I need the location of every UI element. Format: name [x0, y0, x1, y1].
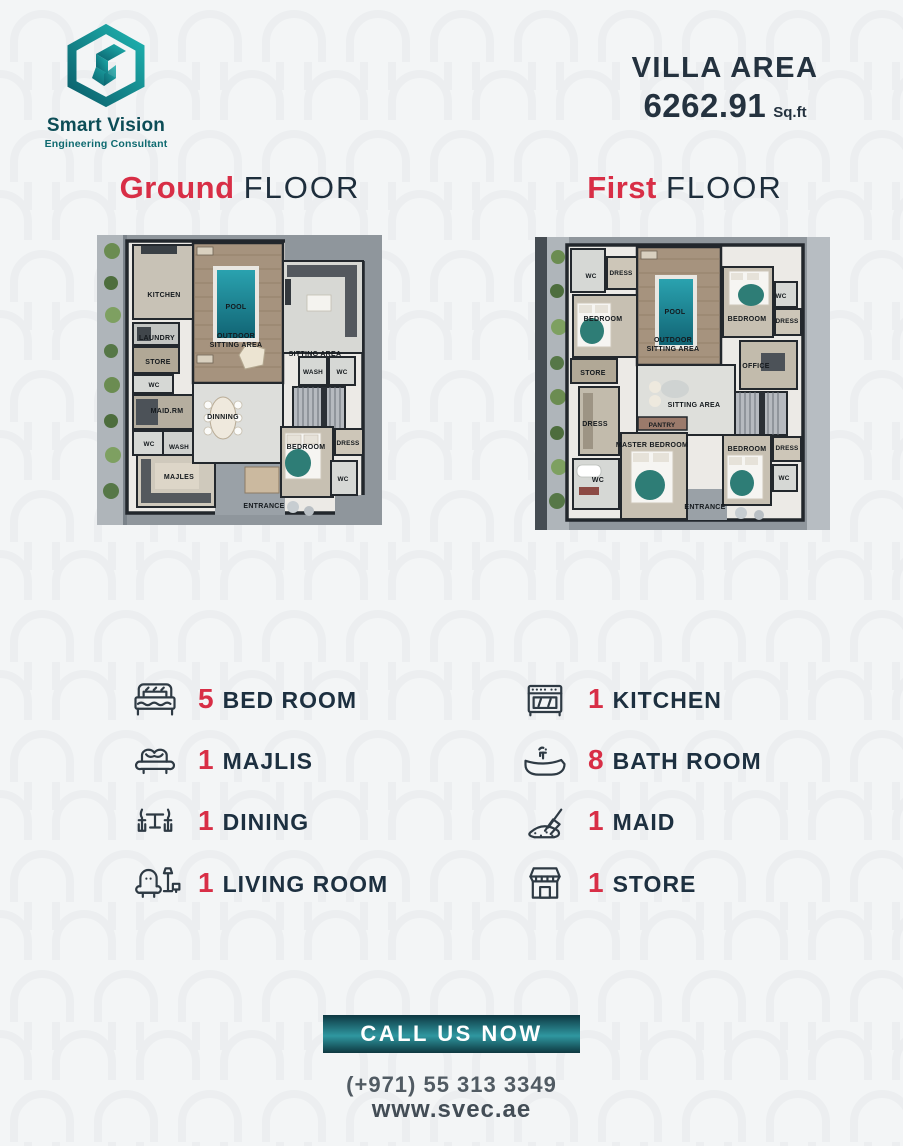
feature-label: MAID	[613, 809, 676, 835]
room-label: WC	[148, 382, 159, 389]
first-floor-title-accent: First	[587, 170, 657, 205]
room-label: ENTRANCE	[243, 503, 284, 510]
ground-floor-title-rest: FLOOR	[244, 170, 361, 205]
room-label: BEDROOM	[584, 316, 623, 323]
room-label: BEDROOM	[728, 316, 767, 323]
feature-label: STORE	[613, 871, 697, 897]
room-label: OUTDOOR	[654, 337, 692, 344]
ground-floor-plan-image: KITCHEN LAUNDRY STORE WC MAID.RM WC WASH…	[97, 235, 382, 525]
feature-count: 1	[588, 683, 604, 714]
villa-area-block: VILLA AREA 6262.91Sq.ft	[595, 52, 855, 125]
room-label: DINNING	[207, 414, 239, 421]
feature-bath-room: 8BATH ROOM	[518, 733, 762, 787]
bed-icon	[128, 672, 182, 726]
ground-floor-title-accent: Ground	[120, 170, 235, 205]
brand-name: Smart Vision	[28, 115, 184, 137]
room-label: WC	[592, 477, 604, 484]
feature-label: KITCHEN	[613, 687, 722, 713]
room-label: WC	[778, 475, 789, 482]
sofa-icon	[128, 733, 182, 787]
room-label: OFFICE	[742, 363, 769, 370]
feature-label: MAJLIS	[223, 748, 313, 774]
bed	[285, 433, 321, 479]
feature-count: 8	[588, 744, 604, 775]
website-url[interactable]: www.svec.ae	[0, 1096, 903, 1124]
room-label: STORE	[580, 370, 606, 377]
stairs	[293, 387, 345, 429]
ground-floor-title: Ground FLOOR	[60, 170, 420, 206]
villa-area-unit: Sq.ft	[773, 104, 806, 121]
feature-count: 1	[198, 744, 214, 775]
room-label: WC	[336, 369, 347, 376]
room-label: DRESS	[336, 440, 360, 447]
phone-number: (+971) 55 313 3349	[0, 1072, 903, 1098]
room-label: WC	[337, 476, 348, 483]
bathtub-icon	[518, 733, 572, 787]
room-label: SITTING AREA	[647, 346, 700, 353]
room-label: SITTING AREA	[289, 351, 342, 358]
room-label: OUTDOOR	[217, 333, 255, 340]
bed	[631, 451, 673, 503]
room-label: BEDROOM	[728, 446, 767, 453]
room-label: BEDROOM	[287, 444, 326, 451]
room-label: DRESS	[609, 270, 633, 277]
armchair-icon	[128, 856, 182, 910]
room-label: SITTING AREA	[668, 402, 721, 409]
room-label: POOL	[225, 304, 246, 311]
room-label: DRESS	[775, 318, 799, 325]
room-label: LAUNDRY	[139, 335, 175, 342]
feature-dining: 1DINING	[128, 794, 309, 848]
bed	[727, 455, 763, 499]
feature-count: 1	[588, 805, 604, 836]
brand-logo-block: Smart Vision Engineering Consultant	[28, 22, 184, 150]
feature-label: BED ROOM	[223, 687, 358, 713]
room-label: MASTER BEDROOM	[616, 442, 688, 449]
feature-store: 1STORE	[518, 856, 696, 910]
room-label: KITCHEN	[147, 292, 180, 299]
bed	[577, 303, 611, 347]
feature-living-room: 1LIVING ROOM	[128, 856, 388, 910]
feature-count: 1	[198, 805, 214, 836]
call-us-now-button[interactable]: CALL US NOW	[323, 1015, 580, 1053]
room-label: DRESS	[582, 421, 608, 428]
brand-tagline: Engineering Consultant	[28, 138, 184, 150]
feature-count: 1	[588, 867, 604, 898]
room-label: MAID.RM	[151, 408, 184, 415]
room-label: WASH	[169, 444, 189, 451]
store-icon	[518, 856, 572, 910]
pool-deck	[193, 243, 283, 383]
room-label: STORE	[145, 359, 171, 366]
stairs	[735, 392, 787, 435]
room-label: MAJLES	[164, 474, 194, 481]
room-label: WASH	[303, 369, 323, 376]
mop-icon	[518, 794, 572, 848]
smart-vision-logo-icon	[56, 22, 156, 108]
room-label: PANTRY	[649, 422, 676, 429]
flyer-page: Smart Vision Engineering Consultant VILL…	[0, 0, 903, 1146]
villa-area-value: 6262.91	[643, 87, 766, 124]
feature-kitchen: 1KITCHEN	[518, 672, 722, 726]
first-floor-title-rest: FLOOR	[666, 170, 783, 205]
first-floor-title: First FLOOR	[505, 170, 865, 206]
feature-label: LIVING ROOM	[223, 871, 389, 897]
room-label: WC	[775, 293, 786, 300]
room-label: SITTING AREA	[210, 342, 263, 349]
feature-count: 5	[198, 683, 214, 714]
bed	[729, 271, 769, 306]
villa-area-label: VILLA AREA	[595, 52, 855, 85]
feature-count: 1	[198, 867, 214, 898]
dining-icon	[128, 794, 182, 848]
feature-majlis: 1MAJLIS	[128, 733, 313, 787]
feature-maid: 1MAID	[518, 794, 675, 848]
room-label: DRESS	[775, 445, 799, 452]
first-floor-plan-image: WC DRESS BEDROOM STORE DRESS WC POOL OUT…	[535, 237, 830, 530]
room-label: WC	[585, 273, 596, 280]
room-label: WC	[143, 441, 154, 448]
feature-label: BATH ROOM	[613, 748, 762, 774]
feature-label: DINING	[223, 809, 310, 835]
room-label: ENTRANCE	[684, 504, 725, 511]
room-label: POOL	[664, 309, 685, 316]
stove-icon	[518, 672, 572, 726]
feature-bed-room: 5BED ROOM	[128, 672, 357, 726]
